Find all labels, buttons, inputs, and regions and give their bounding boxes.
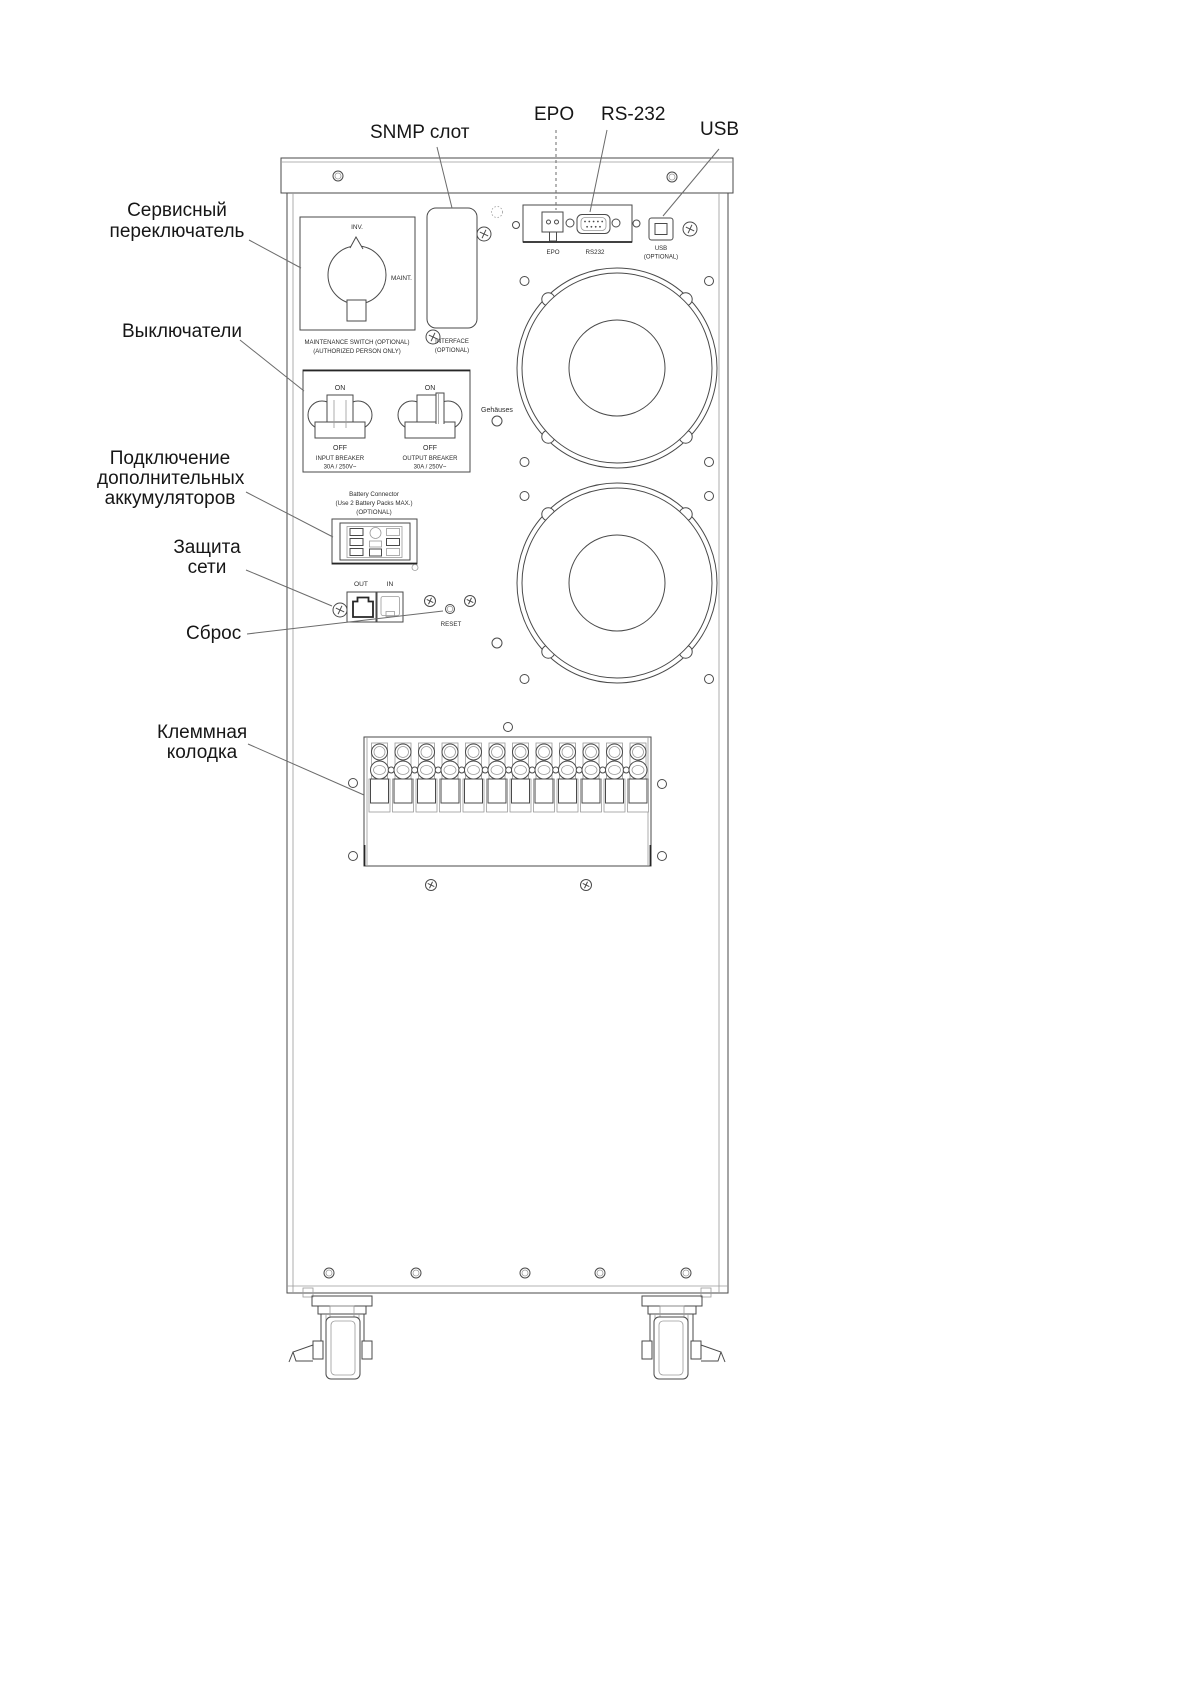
gehauses-label: Gehäuses [481,407,513,414]
reset-button [446,605,455,614]
input-breaker-label: INPUT BREAKER [316,456,365,462]
cover-screw-top [477,227,491,241]
input-breaker-rating: 30A / 250V~ [324,465,357,471]
terminal-screw-left [426,880,437,891]
rs232-port-label: RS232 [586,249,605,256]
epo-port-label: EPO [546,249,559,256]
in-label: IN [387,581,394,588]
breaker-panel: ON ON OFF OFF INPUT BREAKER 30A / 250V~ … [303,370,470,472]
callout-epo: EPO [534,104,574,125]
callout-terminal-line1: Клеммная [157,723,247,743]
input-on-label: ON [335,385,346,392]
callout-network-line2: сети [169,558,245,578]
maintenance-caption-2: (AUTHORIZED PERSON ONLY) [313,349,401,355]
device-drawing: INV. MAINT. MAINTENANCE SWITCH (OPTIONAL… [0,0,1190,1684]
out-label: OUT [354,581,368,588]
network-screw-mid [425,596,436,607]
hole [658,852,667,861]
hole [349,852,358,861]
maintenance-switch: INV. MAINT. MAINTENANCE SWITCH (OPTIONAL… [300,217,415,355]
output-breaker-rating: 30A / 250V~ [414,465,447,471]
db9-connector [577,215,610,234]
usb-screw [683,222,697,236]
callout-usb: USB [700,119,739,140]
battery-connector: Battery Connector (Use 2 Battery Packs M… [332,491,418,571]
callout-rs232: RS-232 [601,104,665,125]
battery-caption-2: (Use 2 Battery Packs MAX.) [335,500,412,507]
battery-caption-1: Battery Connector [349,491,399,498]
gehauses-mark: Gehäuses [481,407,513,648]
callout-battery: Подключение дополнительных аккумуляторов [97,449,243,509]
caster-left [289,1288,372,1379]
hole [658,780,667,789]
callout-service-switch-line1: Сервисный [106,200,248,221]
inv-label: INV. [351,224,363,231]
hole [349,779,358,788]
callout-battery-line2: дополнительных [97,469,243,489]
callout-terminal-line2: колодка [157,743,247,763]
rj45-out [347,592,376,622]
callout-battery-line1: Подключение [97,449,243,469]
battery-caption-3: (OPTIONAL) [356,509,391,516]
epo-rs232-panel: EPO RS232 [492,205,641,256]
interface-caption-2: (OPTIONAL) [435,348,469,354]
snmp-interface-cover: INTERFACE (OPTIONAL) [426,208,491,354]
output-breaker-label: OUTPUT BREAKER [403,456,459,462]
network-screw-left [333,603,347,617]
input-breaker [308,395,372,438]
output-on-label: ON [425,385,436,392]
usb-port-label: USB [655,246,667,252]
reset-label: RESET [441,621,462,628]
terminal-block [349,723,667,891]
callout-snmp-slot: SNMP слот [370,122,469,143]
network-screw-right [465,596,476,607]
callout-breakers: Выключатели [122,321,242,342]
maint-label: MAINT. [391,275,412,282]
callout-battery-line3: аккумуляторов [97,489,243,509]
usb-port-note: (OPTIONAL) [644,255,678,261]
callout-network: Защита сети [169,538,245,578]
ups-rear-panel-diagram: INV. MAINT. MAINTENANCE SWITCH (OPTIONAL… [0,0,1190,1684]
output-off-label: OFF [423,445,437,452]
hole [504,723,513,732]
callout-reset: Сброс [186,623,241,644]
usb-port: USB (OPTIONAL) [644,218,697,261]
terminal-screw-right [581,880,592,891]
fan-top [517,268,717,468]
input-off-label: OFF [333,445,347,452]
interface-caption-1: INTERFACE [435,339,469,345]
callout-service-switch-line2: переключатель [106,221,248,242]
callout-service-switch: Сервисный переключатель [106,200,248,242]
fan-bottom [517,483,717,683]
caster-right [642,1288,725,1379]
callout-network-line1: Защита [169,538,245,558]
callout-terminal: Клеммная колодка [157,723,247,763]
maintenance-caption-1: MAINTENANCE SWITCH (OPTIONAL) [304,340,409,346]
